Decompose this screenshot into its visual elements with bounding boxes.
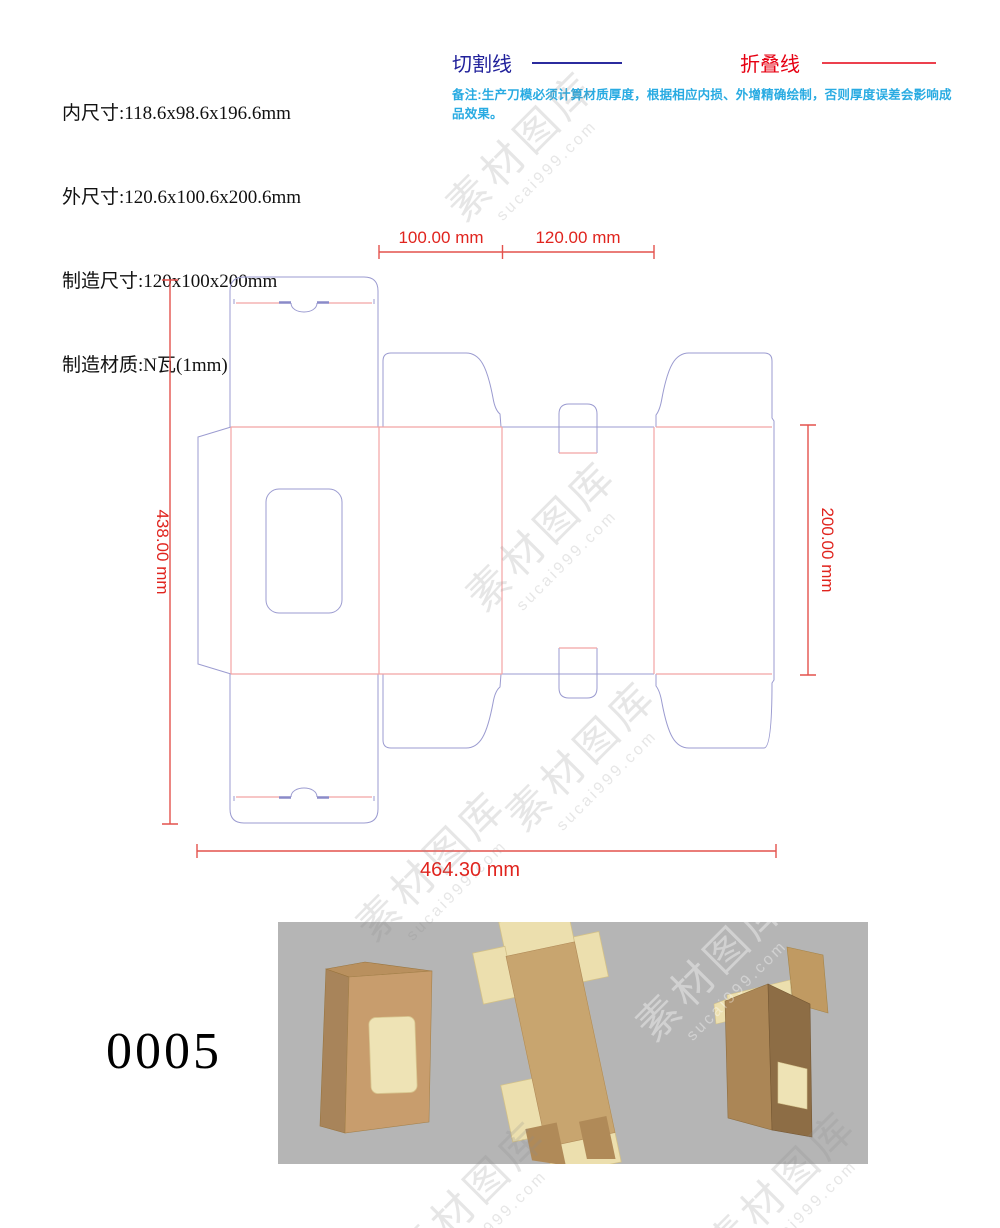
dimension-bottom: 464.30 mm (197, 844, 776, 881)
box-renders (278, 922, 868, 1164)
dimension-top-right-value: 120.00 mm (535, 228, 620, 247)
dieline-drawing: 100.00 mm 120.00 mm 438.00 mm 200.00 mm … (0, 0, 1000, 900)
back-panel-edges-cut (502, 427, 654, 674)
bottom-lid-cut (230, 674, 378, 823)
open-box-window (778, 1062, 807, 1109)
closed-box-window (369, 1016, 418, 1094)
lock-tab-bottom-cut (559, 648, 597, 698)
top-lid-cut (230, 277, 378, 427)
dimension-top-line (379, 245, 654, 259)
lock-tab-top-cut (559, 404, 597, 453)
dimension-bottom-line (197, 844, 776, 858)
window-cutout (266, 489, 342, 613)
dimension-left-value: 438.00 mm (153, 509, 172, 594)
open-box-left-face (725, 984, 772, 1130)
render-closed-box (320, 962, 432, 1133)
dust-flap-top-right-cut (656, 353, 774, 427)
render-panel (278, 922, 868, 1164)
dust-flap-top-left-cut (383, 353, 501, 427)
fold-lines (231, 303, 772, 797)
top-lid-thumb-notch-cut (291, 303, 317, 312)
dieline-spec-sheet: 内尺寸:118.6x98.6x196.6mm 外尺寸:120.6x100.6x2… (0, 0, 1000, 1228)
dimension-top: 100.00 mm 120.00 mm (379, 228, 654, 259)
dust-flap-bottom-right-cut (656, 674, 774, 748)
bottom-lid-thumb-notch-cut (291, 788, 317, 797)
dimension-right-line (800, 425, 816, 675)
render-flat-blank (464, 922, 647, 1164)
dimension-top-left-value: 100.00 mm (398, 228, 483, 247)
glue-flap-cut (198, 427, 231, 674)
dimension-right-value: 200.00 mm (818, 507, 837, 592)
open-box-right-face (768, 984, 812, 1137)
dimension-bottom-value: 464.30 mm (420, 859, 520, 881)
closed-box-side-face (320, 969, 349, 1133)
dimension-left: 438.00 mm (153, 280, 178, 824)
dust-flap-bottom-left-cut (383, 674, 501, 748)
dimension-right: 200.00 mm (800, 425, 837, 675)
render-open-box (714, 947, 828, 1137)
sheet-number: 0005 (106, 1022, 222, 1081)
